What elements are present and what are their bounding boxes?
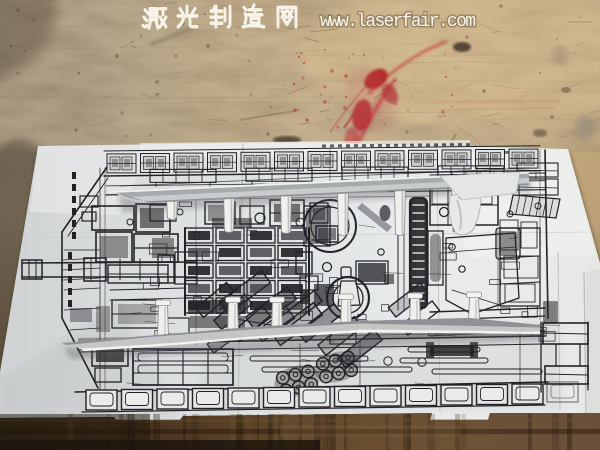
svg-text:www.laserfair.com: www.laserfair.com [320,12,476,32]
